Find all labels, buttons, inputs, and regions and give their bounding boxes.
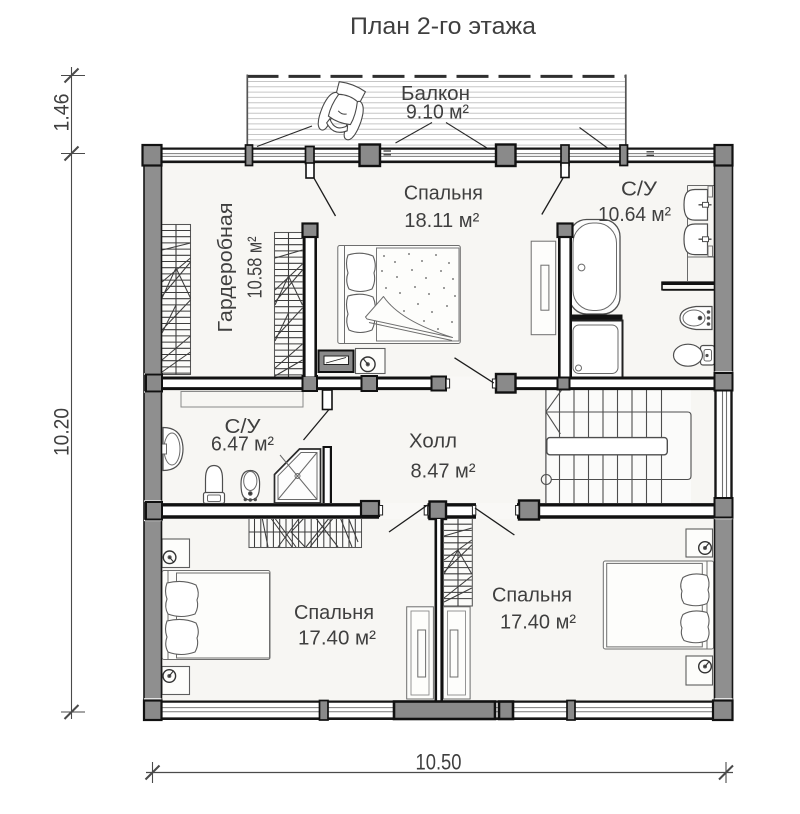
svg-text:Холл: Холл	[409, 429, 457, 452]
svg-text:17.40 м²: 17.40 м²	[500, 611, 576, 634]
svg-text:6.47 м²: 6.47 м²	[211, 433, 274, 456]
svg-text:9.10 м²: 9.10 м²	[406, 101, 469, 124]
svg-text:Спальня: Спальня	[404, 182, 483, 205]
svg-text:С/У: С/У	[621, 178, 658, 201]
svg-text:План 2-го этажа: План 2-го этажа	[350, 13, 536, 40]
svg-text:17.40 м²: 17.40 м²	[298, 627, 376, 650]
svg-text:10.64 м²: 10.64 м²	[598, 203, 671, 226]
svg-text:10.58 м²: 10.58 м²	[244, 236, 267, 298]
svg-text:10.50: 10.50	[416, 750, 462, 775]
svg-text:Спальня: Спальня	[294, 601, 374, 624]
svg-text:18.11 м²: 18.11 м²	[404, 209, 479, 232]
svg-text:Спальня: Спальня	[492, 584, 572, 607]
svg-text:8.47 м²: 8.47 м²	[411, 460, 476, 483]
svg-text:1.46: 1.46	[50, 93, 74, 131]
svg-text:Гардеробная: Гардеробная	[214, 203, 237, 333]
svg-text:10.20: 10.20	[50, 408, 74, 456]
